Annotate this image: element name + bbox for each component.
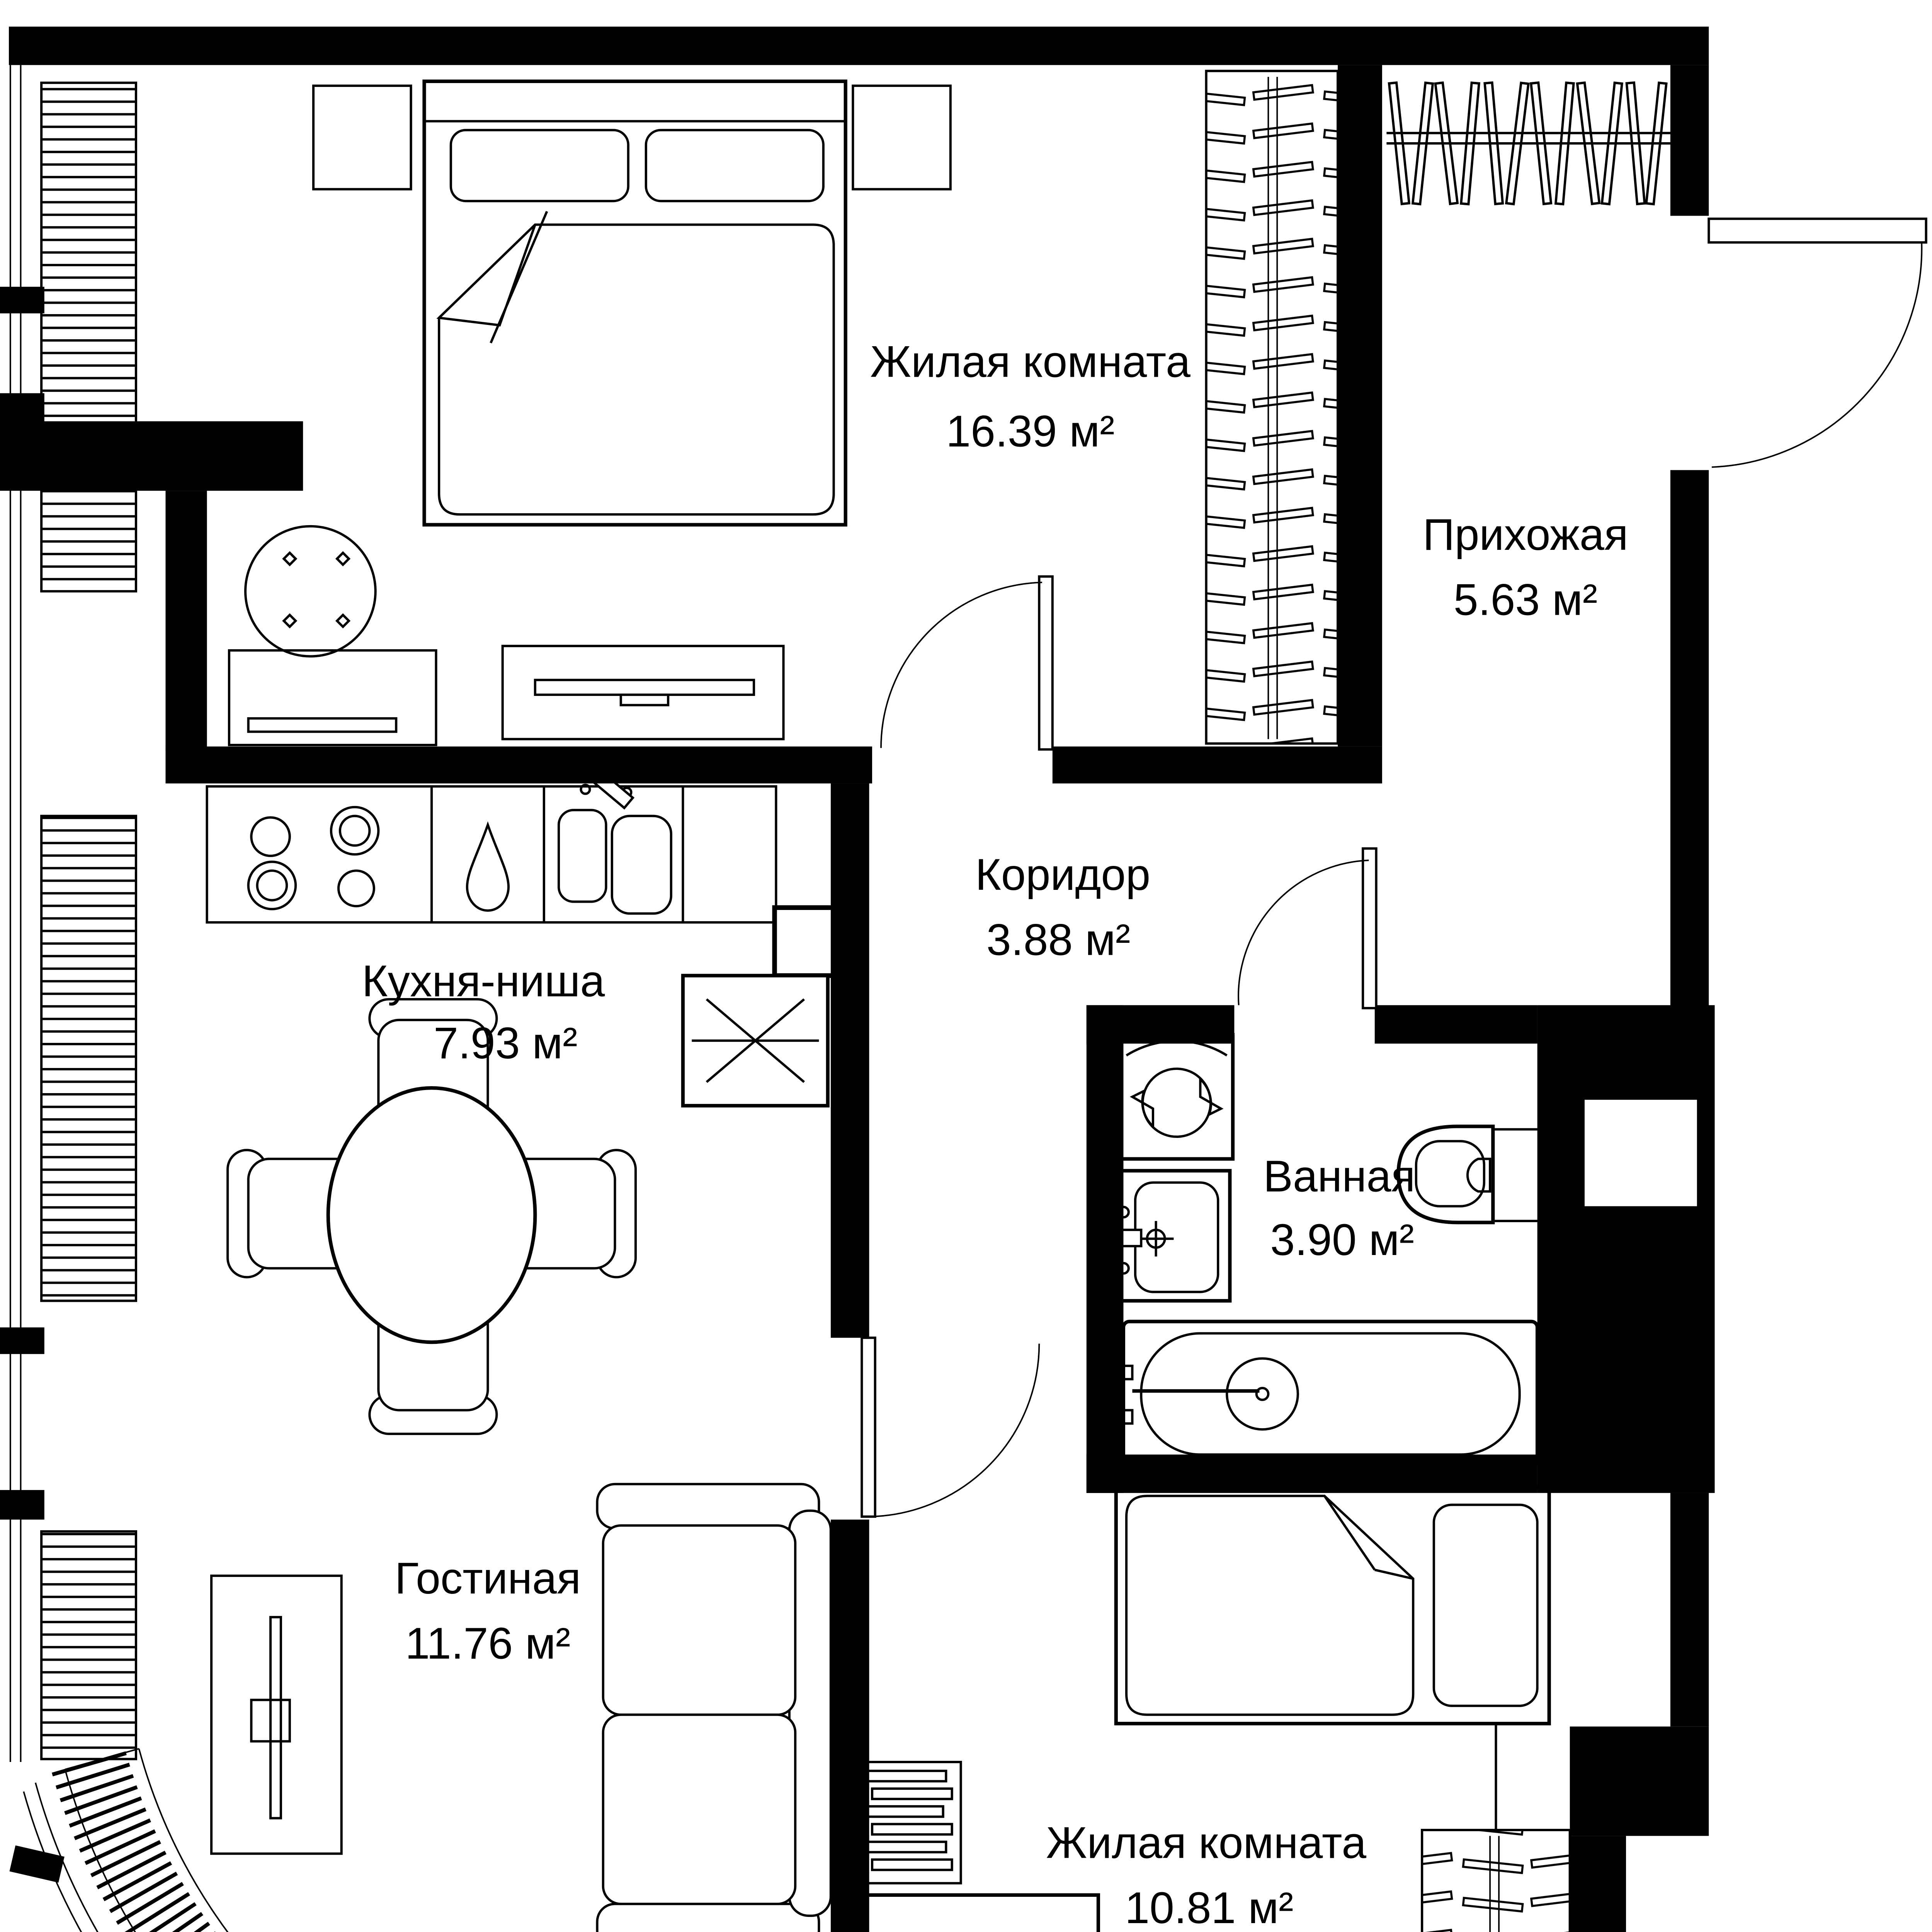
- room-label-bedroom-2: Жилая комната: [1046, 1818, 1366, 1868]
- sofa: [597, 1484, 831, 1932]
- room-area-hallway: 5.63 м²: [1454, 575, 1597, 624]
- wall-kitchen-top: [165, 747, 872, 784]
- room-label-hallway: Прихожая: [1423, 510, 1628, 560]
- fridge-icon: [683, 976, 828, 1106]
- room-area-bedroom-1: 16.39 м²: [946, 406, 1114, 456]
- wall-left-mass: [0, 421, 303, 491]
- room-label-living-room: Гостиная: [395, 1554, 581, 1603]
- bathroom-shaft: [1537, 1005, 1715, 1493]
- room-area-kitchen: 7.93 м²: [434, 1019, 577, 1068]
- wall-bathroom-left: [1087, 1005, 1124, 1493]
- single-bed: [1116, 1487, 1549, 1724]
- window-radiator-lower: [41, 1531, 136, 1759]
- washing-machine-icon: [1121, 1035, 1233, 1159]
- window-radiator-middle: [41, 816, 136, 1301]
- wardrobe-bedroom-1: [1206, 71, 1338, 744]
- wall-top: [9, 27, 1709, 65]
- desk-with-chair: [850, 1895, 1106, 1932]
- floor-plan-canvas: Жилая комната 16.39 м² Прихожая 5.63 м² …: [0, 0, 1932, 1932]
- bathroom-sink-icon: [1112, 1171, 1230, 1301]
- wall-bedroom1-hallway: [1338, 65, 1382, 747]
- room-area-living-room: 11.76 м²: [405, 1619, 571, 1668]
- wall-right-top: [1670, 65, 1709, 216]
- wall-corridor-top: [1053, 747, 1382, 784]
- shaft-niche: [1585, 1100, 1697, 1206]
- wall-bathroom-bottom: [1087, 1454, 1537, 1493]
- room-label-bedroom-1: Жилая комната: [870, 337, 1190, 387]
- room-label-kitchen: Кухня-ниша: [362, 956, 605, 1006]
- window-radiator-top: [41, 83, 136, 591]
- floor-plan: Жилая комната 16.39 м² Прихожая 5.63 м² …: [0, 0, 1932, 1932]
- toilet-icon: [1398, 1126, 1540, 1223]
- background: [0, 0, 1932, 1932]
- room-area-bathroom: 3.90 м²: [1270, 1215, 1414, 1265]
- bathtub-icon: [1112, 1321, 1537, 1466]
- wall-living-bedroom2: [831, 1520, 869, 1932]
- room-label-bathroom: Ванная: [1263, 1151, 1415, 1201]
- room-area-bedroom-2: 10.81 м²: [1125, 1883, 1293, 1932]
- room-label-corridor: Коридор: [975, 850, 1150, 900]
- dining-table: [328, 1088, 535, 1342]
- wall-kitchen-corridor: [831, 784, 869, 1338]
- room-area-corridor: 3.88 м²: [986, 915, 1130, 964]
